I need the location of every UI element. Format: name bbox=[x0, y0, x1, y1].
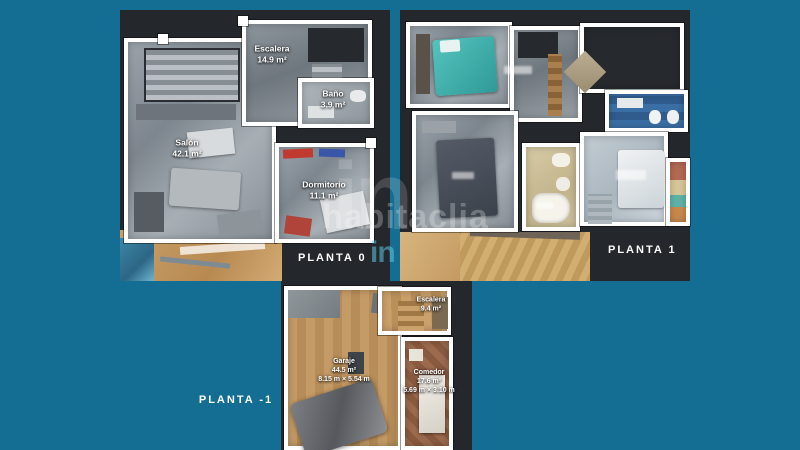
clutter-red2 bbox=[284, 215, 312, 236]
motorcycle-clutter bbox=[289, 378, 388, 450]
toilet bbox=[556, 177, 570, 191]
clutter-white-streak bbox=[180, 241, 265, 255]
wardrobe bbox=[416, 34, 430, 94]
toilet bbox=[649, 110, 661, 124]
deck-light bbox=[400, 232, 460, 281]
clutter-dark bbox=[134, 192, 164, 232]
counter bbox=[617, 98, 643, 108]
rug bbox=[588, 194, 612, 224]
room-label-garaje: Garaje44.5 m²8.15 m × 5.54 m bbox=[318, 358, 370, 384]
sink bbox=[552, 153, 570, 167]
counter bbox=[136, 104, 236, 120]
room-label-escalera-p-1: Escalera9.4 m² bbox=[417, 296, 446, 314]
clutter-gray bbox=[217, 209, 264, 237]
room-bathroom-beige bbox=[522, 143, 580, 231]
floor-title-planta-1: PLANTA 1 bbox=[608, 244, 677, 256]
room-label-escalera-p0: Escalera14.9 m² bbox=[255, 43, 290, 64]
clutter-gray-streak bbox=[160, 256, 230, 268]
room-bedroom-teal bbox=[406, 22, 512, 108]
dresser bbox=[422, 121, 456, 133]
clutter-gray bbox=[288, 290, 340, 318]
wall-stub bbox=[158, 34, 168, 44]
bidet bbox=[667, 110, 679, 124]
shelf-wood bbox=[548, 54, 562, 116]
scan-spill-deck bbox=[400, 232, 590, 281]
clutter-blue bbox=[120, 238, 154, 281]
illegible-room-label bbox=[616, 170, 646, 180]
deck-edge bbox=[470, 232, 580, 240]
illegible-room-label bbox=[536, 202, 554, 209]
illegible-room-label bbox=[452, 172, 474, 179]
room-unscanned bbox=[580, 23, 684, 93]
toilet bbox=[350, 90, 366, 102]
room-bathroom-blue bbox=[605, 90, 688, 132]
room-label-salon: Salón42.1 m² bbox=[172, 137, 201, 158]
sofa bbox=[169, 168, 241, 211]
floor-title-planta-0: PLANTA 0 bbox=[298, 252, 367, 264]
floor-panel-planta-1: PLANTA 1 bbox=[400, 10, 690, 281]
wall-stub bbox=[366, 138, 376, 148]
wall-stub bbox=[238, 16, 248, 26]
floor-panel-planta-minus-1: Escalera9.4 m² Garaje44.5 m²8.15 m × 5.5… bbox=[281, 281, 472, 450]
clutter-red bbox=[283, 148, 313, 159]
room-label-dormitorio-p0: Dormitorio11.1 m² bbox=[302, 179, 345, 200]
floorplan-collage: Escalera14.9 m² Baño3.9 m² Salón42.1 m² … bbox=[0, 0, 800, 450]
illegible-room-label bbox=[504, 66, 532, 74]
kitchen-stairs-area bbox=[146, 50, 238, 100]
pillow bbox=[440, 39, 461, 52]
floor-panel-planta-0: Escalera14.9 m² Baño3.9 m² Salón42.1 m² … bbox=[120, 10, 390, 281]
chair bbox=[409, 349, 423, 361]
room-label-comedor: Comedor17.6 m²5.69 m × 3.10 m bbox=[403, 369, 455, 395]
floor-title-planta-minus-1: PLANTA -1 bbox=[198, 394, 274, 406]
clutter-blue bbox=[319, 149, 345, 158]
room-closet-strip bbox=[666, 158, 690, 226]
room-label-bano-p0: Baño3.9 m² bbox=[321, 88, 346, 109]
stairwell-opening bbox=[308, 28, 364, 62]
